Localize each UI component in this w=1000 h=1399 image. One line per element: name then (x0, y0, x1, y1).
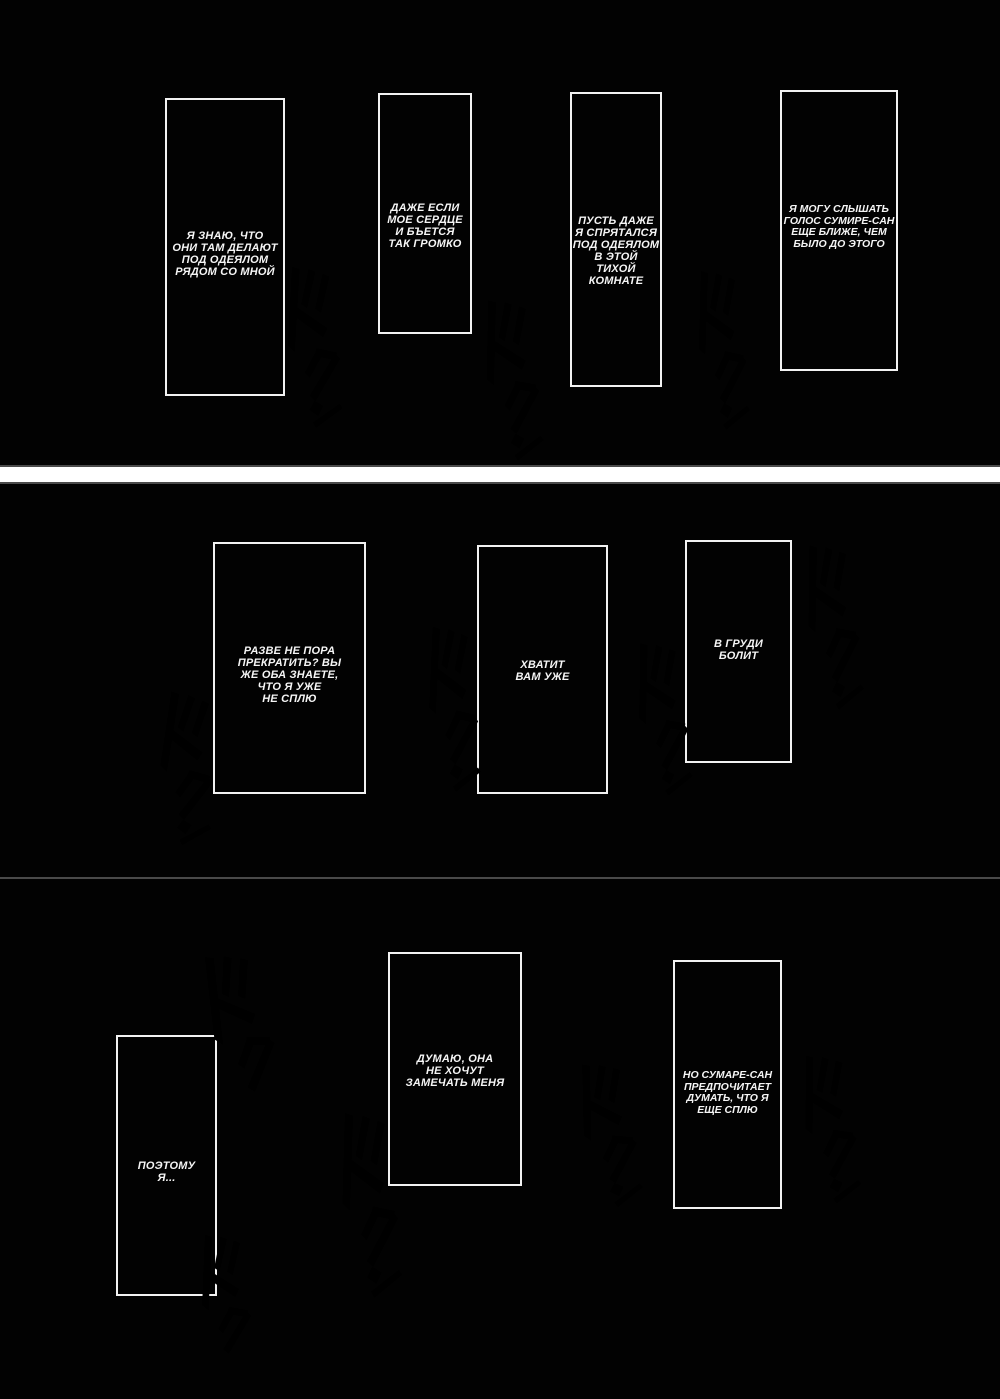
thought-text: В ГРУДИ БОЛИТ (687, 638, 790, 662)
dokun-sfx-icon (564, 1058, 648, 1211)
thought-text: ДАЖЕ ЕСЛИ МОЕ СЕРДЦЕ И БЪЕТСЯ ТАК ГРОМКО (380, 202, 470, 250)
thought-text: ДУМАЮ, ОНА НЕ ХОЧУТ ЗАМЕЧАТЬ МЕНЯ (390, 1053, 520, 1089)
thought-box: РАЗВЕ НЕ ПОРА ПРЕКРАТИТЬ? ВЫ ЖЕ ОБА ЗНАЕ… (213, 542, 366, 794)
dokun-sfx-icon (684, 268, 753, 432)
dokun-sfx-icon (326, 1110, 407, 1300)
thought-text: НО СУМАРЕ-САН ПРЕДПОЧИТАЕТ ДУМАТЬ, ЧТО Я… (675, 1070, 780, 1116)
manga-page: Я ЗНАЮ, ЧТО ОНИ ТАМ ДЕЛАЮТ ПОД ОДЕЯЛОМ Р… (0, 0, 1000, 1399)
thought-text: ХВАТИТ ВАМ УЖЕ (479, 659, 606, 683)
thought-box: ПУСТЬ ДАЖЕ Я СПРЯТАЛСЯ ПОД ОДЕЯЛОМ В ЭТО… (570, 92, 662, 387)
dokun-sfx-icon (470, 297, 548, 464)
thought-box: ДУМАЮ, ОНА НЕ ХОЧУТ ЗАМЕЧАТЬ МЕНЯ (388, 952, 522, 1186)
thought-box: НО СУМАРЕ-САН ПРЕДПОЧИТАЕТ ДУМАТЬ, ЧТО Я… (673, 960, 782, 1209)
thought-text: РАЗВЕ НЕ ПОРА ПРЕКРАТИТЬ? ВЫ ЖЕ ОБА ЗНАЕ… (215, 645, 364, 705)
panel-row-3: ПОЭТОМУ Я... ДУМАЮ, ОНА НЕ ХОЧУТ ЗАМЕЧАТ… (0, 877, 1000, 1399)
dokun-sfx-icon (188, 1232, 256, 1356)
thought-box: Я МОГУ СЛЫШАТЬ ГОЛОС СУМИРЕ-САН ЕЩЕ БЛИЖ… (780, 90, 898, 371)
thought-box: ХВАТИТ ВАМ УЖЕ (477, 545, 608, 794)
thought-text: ПОЭТОМУ Я... (118, 1160, 215, 1184)
thought-box: В ГРУДИ БОЛИТ (685, 540, 792, 763)
dokun-sfx-icon (416, 625, 485, 794)
panel-row-1: Я ЗНАЮ, ЧТО ОНИ ТАМ ДЕЛАЮТ ПОД ОДЕЯЛОМ Р… (0, 0, 1000, 467)
dokun-sfx-icon (147, 691, 218, 846)
dokun-sfx-icon (788, 1051, 865, 1207)
thought-text: ПУСТЬ ДАЖЕ Я СПРЯТАЛСЯ ПОД ОДЕЯЛОМ В ЭТО… (572, 215, 660, 287)
thought-text: Я МОГУ СЛЫШАТЬ ГОЛОС СУМИРЕ-САН ЕЩЕ БЛИЖ… (782, 204, 896, 250)
panel-row-2: РАЗВЕ НЕ ПОРА ПРЕКРАТИТЬ? ВЫ ЖЕ ОБА ЗНАЕ… (0, 482, 1000, 881)
thought-box: ДАЖЕ ЕСЛИ МОЕ СЕРДЦЕ И БЪЕТСЯ ТАК ГРОМКО (378, 93, 472, 334)
thought-box: Я ЗНАЮ, ЧТО ОНИ ТАМ ДЕЛАЮТ ПОД ОДЕЯЛОМ Р… (165, 98, 285, 396)
dokun-sfx-icon (792, 542, 868, 713)
thought-text: Я ЗНАЮ, ЧТО ОНИ ТАМ ДЕЛАЮТ ПОД ОДЕЯЛОМ Р… (167, 230, 283, 278)
dokun-sfx-icon (274, 264, 346, 429)
